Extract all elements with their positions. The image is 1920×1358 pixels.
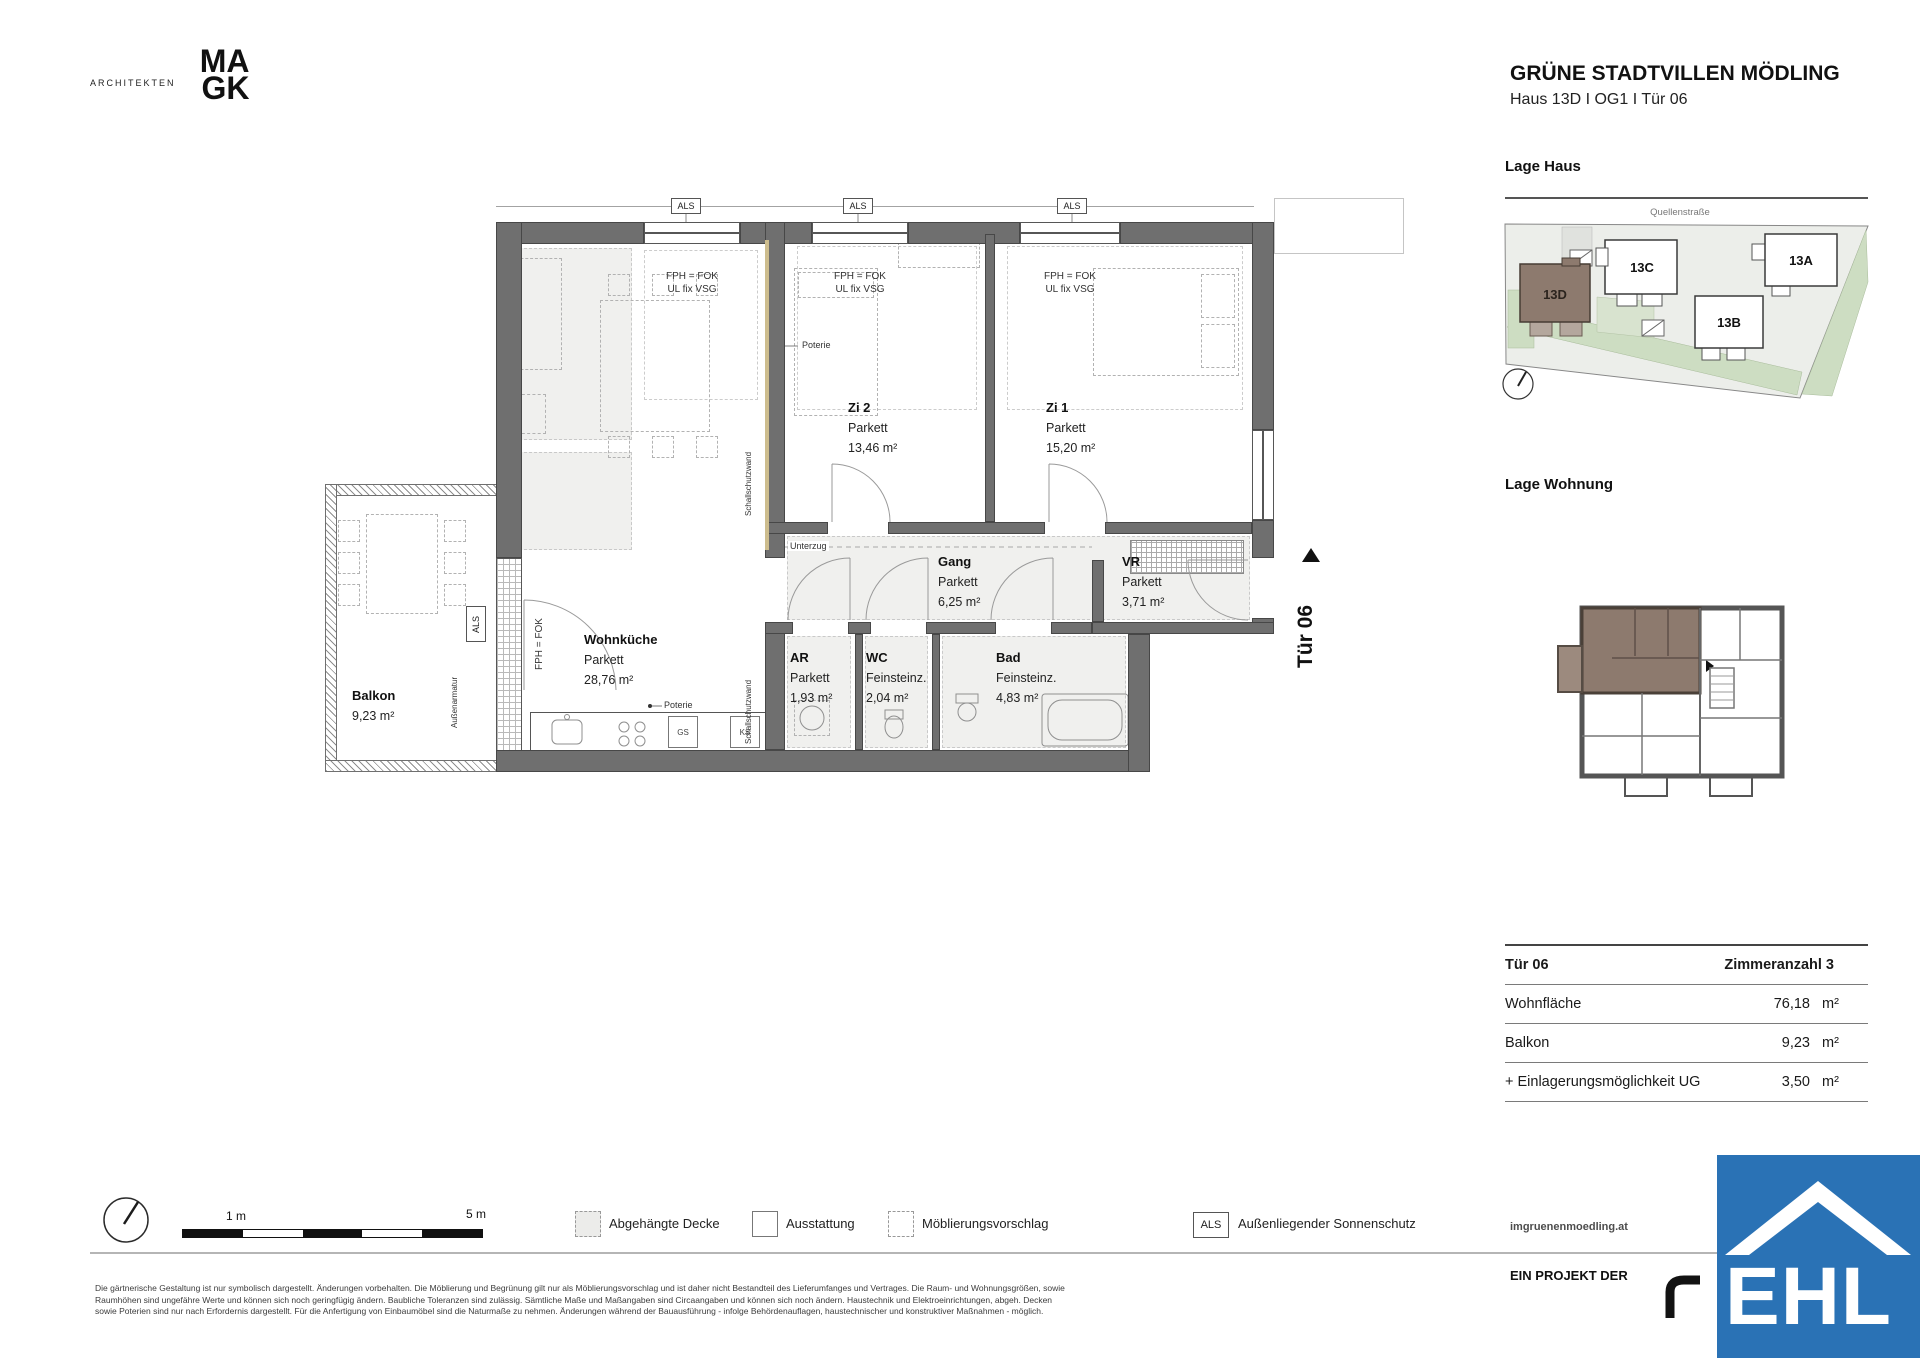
als-ties [686, 214, 1072, 222]
door-swing-entry [1188, 560, 1248, 620]
room-label-bad: Bad Feinsteinz. 4,83 m² [996, 648, 1056, 708]
room-label-zi2: Zi 2 Parkett 13,46 m² [848, 398, 897, 458]
room-area: 3,71 m² [1122, 592, 1164, 612]
als-marker-balcony: ALS [466, 606, 486, 642]
exterior-wall-bottom [496, 750, 1150, 772]
room-name: Zi 1 [1046, 398, 1095, 418]
als-marker: ALS [1057, 198, 1087, 214]
room-area: 4,83 m² [996, 688, 1056, 708]
room-name: Gang [938, 552, 980, 572]
gang-vr-wall [1092, 560, 1104, 622]
window [1020, 222, 1120, 244]
room-floor: Parkett [938, 572, 980, 592]
exterior-wall-left [496, 222, 522, 558]
room-floor: Feinsteinz. [866, 668, 926, 688]
aussenarmatur-label: Außenarmatur [450, 644, 459, 728]
corridor-wall-lower [1051, 622, 1092, 634]
fph-label: FPH = FOK [642, 270, 742, 283]
ul-label: UL fix VSG [1020, 283, 1120, 296]
room-label-wohnkueche: Wohnküche Parkett 28,76 m² [584, 630, 657, 690]
room-floor: Parkett [790, 668, 832, 688]
corridor-wall [888, 522, 1045, 534]
acoustic-insulation-strip [765, 240, 769, 550]
window-annotation: FPH = FOK UL fix VSG [1020, 270, 1120, 296]
poterie-leader-dot-2 [648, 704, 652, 708]
room-area: 1,93 m² [790, 688, 832, 708]
vr-wall-lower [1092, 622, 1274, 634]
room-name: Wohnküche [584, 630, 657, 650]
exterior-wall-right [1252, 520, 1274, 558]
room-floor: Parkett [1122, 572, 1164, 592]
bathtub-inner-icon [1048, 700, 1122, 740]
cooktop-burner-icon [635, 736, 645, 746]
window-annotation: FPH = FOK UL fix VSG [810, 270, 910, 296]
room-name: Zi 2 [848, 398, 897, 418]
corridor-wall-lower [926, 622, 996, 634]
interior-wall-wk-lower [765, 622, 785, 750]
room-area: 2,04 m² [866, 688, 926, 708]
room-label-wc: WC Feinsteinz. 2,04 m² [866, 648, 926, 708]
poterie-label: Poterie [802, 340, 831, 350]
room-area: 28,76 m² [584, 670, 657, 690]
room-floor: Parkett [848, 418, 897, 438]
corridor-wall [1105, 522, 1252, 534]
room-name: VR [1122, 552, 1164, 572]
washbasin-icon [958, 703, 976, 721]
room-floor: Parkett [584, 650, 657, 670]
balcony-glass-door [496, 558, 522, 752]
wall-type-label: Schallschutzwand [744, 420, 753, 516]
room-label-vr: VR Parkett 3,71 m² [1122, 552, 1164, 612]
room-area: 9,23 m² [352, 706, 395, 726]
fph-label: FPH = FOK [810, 270, 910, 283]
washbasin-shelf-icon [956, 694, 978, 703]
ul-label: UL fix VSG [642, 283, 742, 296]
room-floor: Feinsteinz. [996, 668, 1056, 688]
entry-arrow-icon [1302, 548, 1320, 562]
exterior-wall-right [1252, 222, 1274, 430]
faucet-icon [565, 715, 570, 720]
room-label-balkon: Balkon 9,23 m² [352, 686, 395, 726]
room-label-gang: Gang Parkett 6,25 m² [938, 552, 980, 612]
bad-east-wall [1128, 634, 1150, 772]
door-swing-zi2 [832, 464, 890, 522]
room-area: 13,46 m² [848, 438, 897, 458]
cooktop-burner-icon [635, 722, 645, 732]
window-annotation: FPH = FOK UL fix VSG [642, 270, 742, 296]
wc-bad-wall [932, 634, 940, 750]
door-number-marker: Tür 06 [1294, 568, 1318, 668]
washer-drum-icon [800, 706, 824, 730]
corridor-wall-lower [848, 622, 871, 634]
sink-icon [552, 720, 582, 744]
poterie-label: Poterie [664, 700, 693, 710]
room-area: 15,20 m² [1046, 438, 1095, 458]
window-zi1-east [1252, 430, 1274, 520]
plan-linework [0, 0, 1920, 1358]
room-floor: Parkett [1046, 418, 1095, 438]
corridor-wall [765, 522, 828, 534]
als-marker: ALS [671, 198, 701, 214]
fph-label: FPH = FOK [1020, 270, 1120, 283]
door-swing-gang-2 [866, 558, 928, 620]
room-name: WC [866, 648, 926, 668]
fph-fok-label: FPH = FOK [534, 574, 545, 670]
exterior-wall [908, 222, 1020, 244]
ul-label: UL fix VSG [810, 283, 910, 296]
unterzug-label: Unterzug [788, 541, 829, 551]
room-label-ar: AR Parkett 1,93 m² [790, 648, 832, 708]
als-marker: ALS [843, 198, 873, 214]
ar-wc-wall [855, 634, 863, 750]
door-swing-gang-3 [991, 558, 1053, 620]
plan-sheet: ARCHITEKTEN MA GK GRÜNE STADTVILLEN MÖDL… [0, 0, 1920, 1358]
door-swing-gang-1 [788, 558, 850, 620]
interior-wall-zi [985, 234, 995, 522]
room-area: 6,25 m² [938, 592, 980, 612]
toilet-tank-icon [885, 710, 903, 719]
exterior-wall [1120, 222, 1254, 244]
wall-type-label: Schallschutzwand [744, 648, 753, 744]
window [644, 222, 740, 244]
cooktop-burner-icon [619, 722, 629, 732]
room-name: AR [790, 648, 832, 668]
door-swing-zi1 [1049, 464, 1107, 522]
room-name: Bad [996, 648, 1056, 668]
corridor-wall-lower [765, 622, 793, 634]
room-name: Balkon [352, 686, 395, 706]
window [812, 222, 908, 244]
cooktop-burner-icon [619, 736, 629, 746]
room-label-zi1: Zi 1 Parkett 15,20 m² [1046, 398, 1095, 458]
